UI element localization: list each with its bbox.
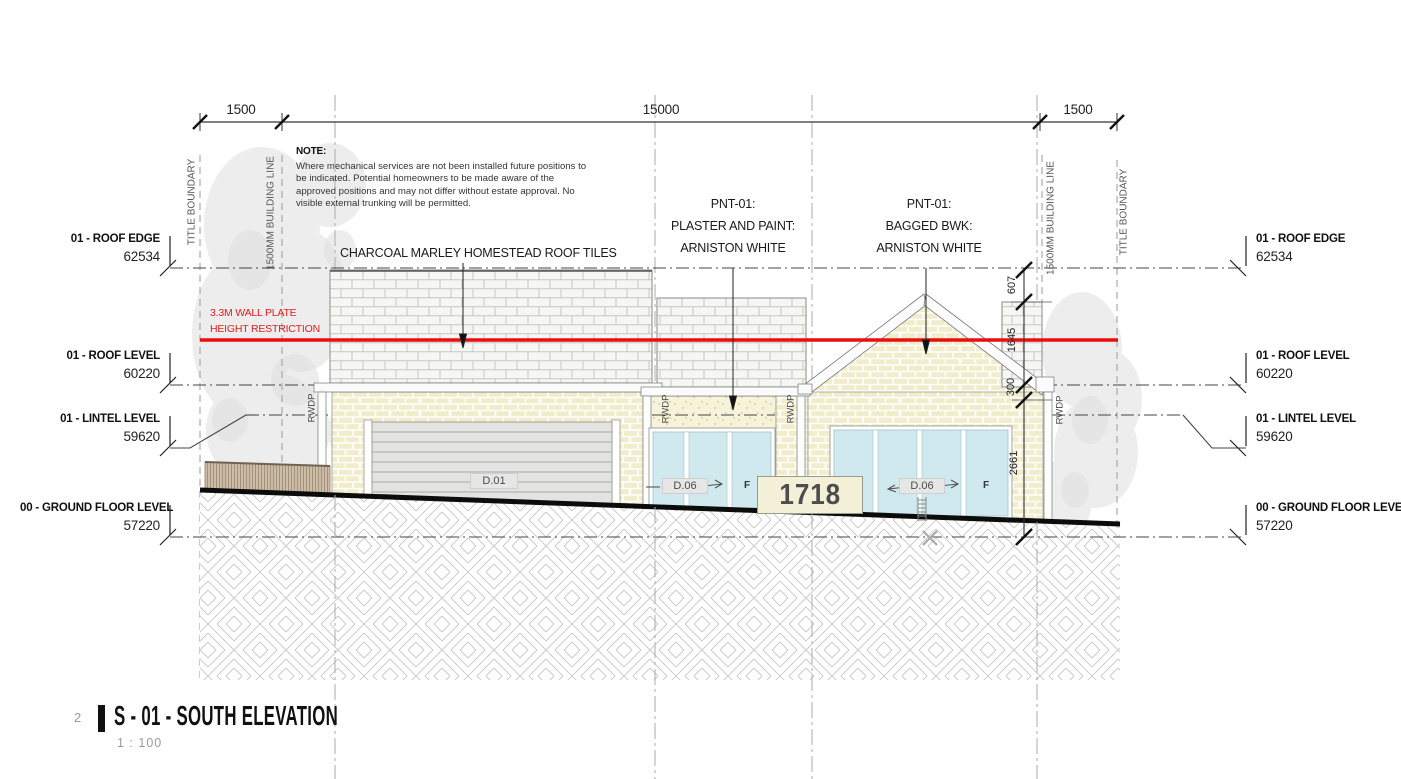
pnt-plaster-line3: ARNISTON WHITE [633,242,833,256]
dim-1645: 1645 [1006,328,1018,352]
note-heading: NOTE: [296,146,326,157]
level-right-ground-value: 57220 [1256,519,1293,534]
dim-15000: 15000 [620,103,702,118]
dim-607: 607 [1006,276,1018,294]
level-right-ground-label: 00 - GROUND FLOOR LEVEL [1256,502,1401,515]
level-left-roof-edge-value: 62534 [20,250,160,265]
f-marker-left: F [744,480,750,491]
level-left-ground-value: 57220 [20,519,160,534]
pnt-plaster-label: PNT-01: PLASTER AND PAINT: ARNISTON WHIT… [633,198,833,255]
drawing-scale: 1 : 100 [117,737,162,751]
level-right-lintel-label: 01 - LINTEL LEVEL [1256,413,1356,426]
door-tag-mid: D.06 [662,478,708,494]
level-right-roof-edge-value: 62534 [1256,250,1293,265]
title-boundary-right-label: TITLE BOUNDARY [1119,169,1130,256]
title-boundary-left-label: TITLE BOUNDARY [187,159,198,246]
dim-300: 300 [1005,378,1017,396]
elevation-sheet: 1500 15000 1500 NOTE: Where mechanical s… [0,0,1401,779]
note-body: Where mechanical services are not been i… [296,161,596,211]
garage-door [364,420,620,506]
pnt-bagged-line1: PNT-01: [829,198,1029,212]
f-marker-right: F [983,480,989,491]
pnt-plaster-line2: PLASTER AND PAINT: [633,220,833,234]
level-left-lintel-label: 01 - LINTEL LEVEL [20,413,160,426]
building-line-right-label: 1500MM BUILDING LINE [1046,161,1057,275]
rwdp-label-1: RWDP [307,394,318,423]
pnt-bagged-line2: BAGGED BWK: [829,220,1029,234]
house-number: 1718 [779,479,841,512]
level-right-roof-level-label: 01 - ROOF LEVEL [1256,350,1350,363]
rwdp-label-2: RWDP [661,395,672,424]
fascia-garage [314,383,662,392]
house-number-sign: 1718 [757,476,863,514]
level-left-roof-level-label: 01 - ROOF LEVEL [20,350,160,363]
pnt-bagged-line3: ARNISTON WHITE [829,242,1029,256]
dim-1500-left: 1500 [200,103,282,118]
height-restriction-line2: HEIGHT RESTRICTION [210,322,320,338]
roof-tiles-label: CHARCOAL MARLEY HOMESTEAD ROOF TILES [340,247,588,261]
pnt-plaster-line1: PNT-01: [633,198,833,212]
drawing-title: S - 01 - SOUTH ELEVATION [114,701,338,732]
level-right-roof-level-value: 60220 [1256,367,1293,382]
level-left-ground-label: 00 - GROUND FLOOR LEVEL [20,502,160,515]
level-left-roof-edge-label: 01 - ROOF EDGE [20,233,160,246]
door-tag-right: D.06 [899,478,945,494]
height-restriction-line1: 3.3M WALL PLATE [210,306,320,322]
dim-1500-right: 1500 [1037,103,1119,118]
level-left-roof-level-value: 60220 [20,367,160,382]
height-restriction-label: 3.3M WALL PLATE HEIGHT RESTRICTION [210,306,320,337]
pnt-bagged-label: PNT-01: BAGGED BWK: ARNISTON WHITE [829,198,1029,255]
roof [314,270,1054,396]
dim-2661: 2661 [1008,451,1020,475]
drawing-number: 2 [74,711,81,725]
building-line-left-label: 1500MM BUILDING LINE [266,156,277,270]
level-right-roof-edge-label: 01 - ROOF EDGE [1256,233,1345,246]
level-right-lintel-value: 59620 [1256,430,1293,445]
level-left-lintel-value: 59620 [20,430,160,445]
rwdp-label-4: RWDP [1055,396,1066,425]
rwdp-label-3: RWDP [786,395,797,424]
door-tag-garage: D.01 [470,473,518,489]
title-marker-bar [98,705,105,732]
